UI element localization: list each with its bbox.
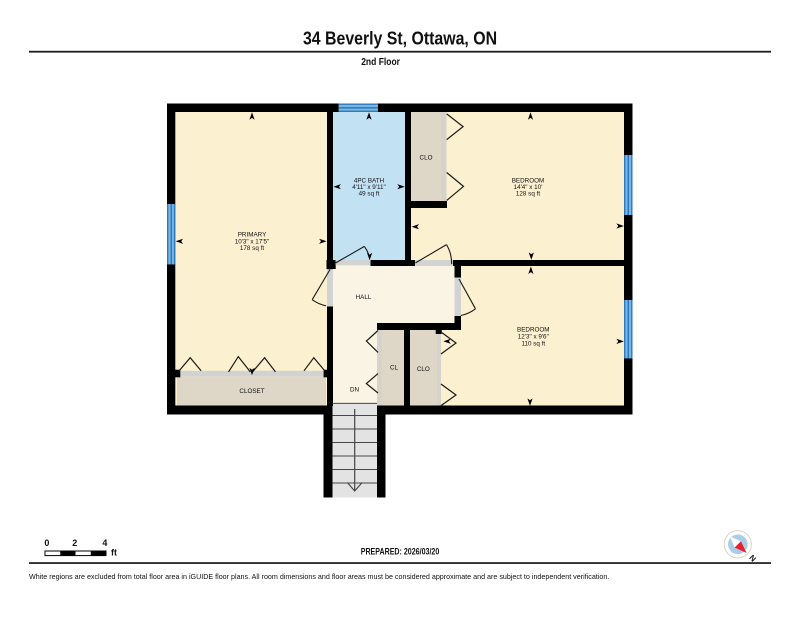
svg-text:CLO: CLO [420, 155, 433, 162]
svg-text:CL: CL [390, 365, 399, 372]
svg-text:DN: DN [350, 387, 360, 394]
svg-text:49 sq ft: 49 sq ft [359, 191, 380, 198]
svg-text:128 sq ft: 128 sq ft [516, 190, 540, 197]
svg-text:BEDROOM: BEDROOM [517, 326, 550, 333]
svg-text:CLOSET: CLOSET [239, 388, 264, 395]
svg-text:ft: ft [111, 548, 117, 558]
svg-text:0: 0 [44, 538, 49, 548]
svg-text:CLO: CLO [417, 366, 430, 373]
svg-text:2: 2 [72, 538, 77, 548]
svg-text:178 sq ft: 178 sq ft [240, 245, 264, 252]
svg-text:HALL: HALL [356, 294, 372, 301]
svg-text:4: 4 [102, 538, 107, 548]
svg-text:PREPARED: 2026/03/20: PREPARED: 2026/03/20 [361, 547, 440, 557]
svg-text:White regions are excluded fro: White regions are excluded from total fl… [29, 573, 609, 581]
svg-text:110 sq ft: 110 sq ft [521, 340, 545, 347]
svg-text:34 Beverly St, Ottawa, ON: 34 Beverly St, Ottawa, ON [303, 27, 497, 48]
svg-text:PRIMARY: PRIMARY [238, 231, 267, 238]
svg-text:2nd Floor: 2nd Floor [361, 56, 400, 68]
